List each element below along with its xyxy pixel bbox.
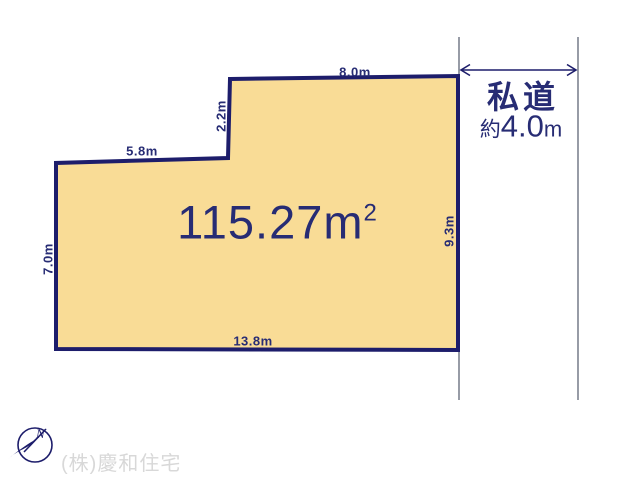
area-label: 115.27m2 <box>177 199 377 246</box>
dimension-left: 7.0m <box>42 243 55 275</box>
company-watermark: (株)慶和住宅 <box>61 447 181 476</box>
compass-north-label: N <box>35 426 46 441</box>
road-width-label: 約4.0m <box>480 111 562 142</box>
compass-ring <box>18 428 52 462</box>
dimension-top: 8.0m <box>339 66 371 79</box>
dimension-notch: 2.2m <box>215 100 228 132</box>
road-width-arrow <box>461 65 576 76</box>
dimension-right: 9.3m <box>443 215 456 247</box>
area-superscript: 2 <box>364 200 377 227</box>
road-width-value: 4.0 <box>501 109 544 144</box>
road-width-prefix: 約 <box>480 119 501 142</box>
dimension-upper-left: 5.8m <box>126 145 158 158</box>
road-width-unit: m <box>544 117 562 142</box>
compass-icon: N <box>8 426 52 462</box>
dimension-bottom: 13.8m <box>233 335 272 348</box>
area-value: 115.27m <box>177 196 363 249</box>
land-plot-diagram: N 8.0m 2.2m 5.8m 7.0m 9.3m 13.8m 115.27m… <box>0 0 640 480</box>
